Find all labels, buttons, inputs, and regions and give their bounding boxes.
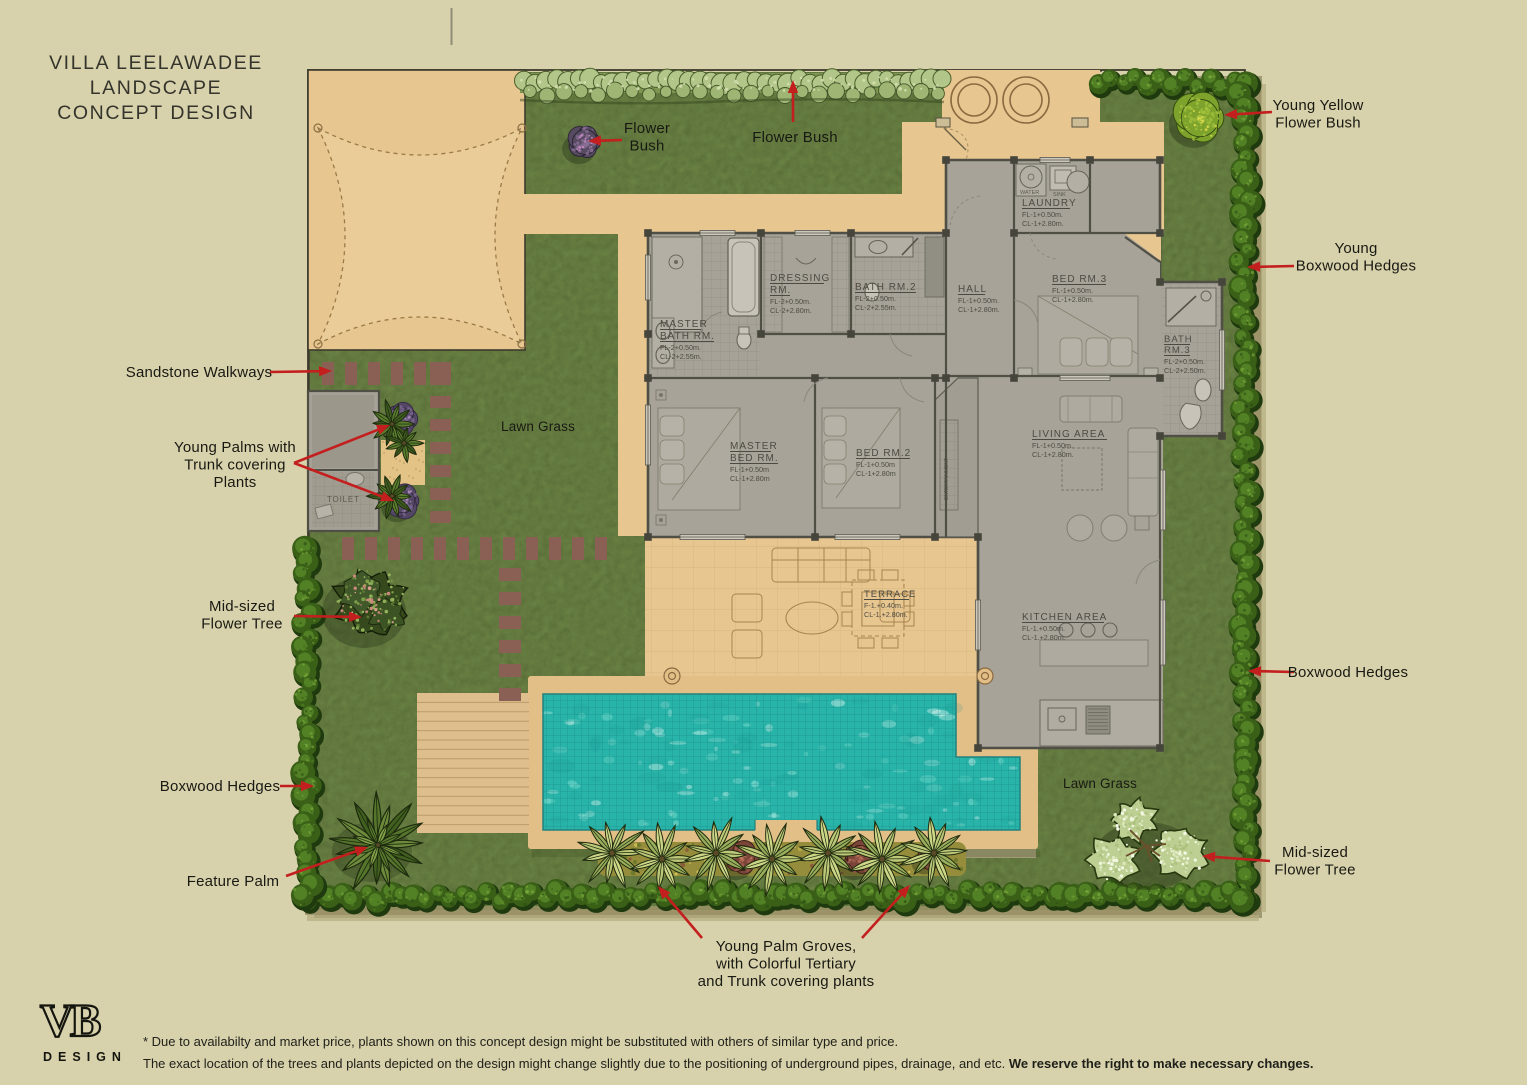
svg-text:Boxwood Hedges: Boxwood Hedges (1288, 664, 1408, 681)
svg-text:Boxwood Hedges: Boxwood Hedges (160, 778, 280, 795)
svg-text:FL-2+0.50m.: FL-2+0.50m. (770, 297, 811, 306)
svg-text:CL-1+2.80m.: CL-1+2.80m. (1032, 450, 1074, 459)
svg-text:CL-2+2.55m.: CL-2+2.55m. (855, 303, 897, 312)
svg-text:CL-1+2.80m: CL-1+2.80m (856, 469, 896, 478)
svg-text:FL-1.+0.50m.: FL-1.+0.50m. (1022, 624, 1065, 633)
svg-text:FL-2+0.50m.: FL-2+0.50m. (660, 343, 701, 352)
svg-text:CL-1+2.80m.: CL-1+2.80m. (1052, 295, 1094, 304)
svg-text:Lawn Grass: Lawn Grass (1063, 776, 1137, 791)
svg-text:LIVING AREA: LIVING AREA (1032, 429, 1105, 440)
svg-text:CL-1+2.80m.: CL-1+2.80m. (958, 305, 1000, 314)
svg-text:LAUNDRY: LAUNDRY (1022, 198, 1077, 209)
svg-text:DRESSING: DRESSING (770, 273, 830, 284)
svg-text:CL-2+2.55m.: CL-2+2.55m. (660, 352, 702, 361)
svg-text:CL-1+2.80m: CL-1+2.80m (730, 474, 770, 483)
svg-text:FL-2+0.50m.: FL-2+0.50m. (1164, 357, 1205, 366)
svg-text:CL-1.+2.80m.: CL-1.+2.80m. (864, 610, 908, 619)
svg-text:DESIGN: DESIGN (43, 1050, 127, 1064)
svg-text:The exact location of the tree: The exact location of the trees and plan… (143, 1056, 1314, 1071)
svg-text:BATH RM.: BATH RM. (660, 331, 715, 342)
svg-text:CL-1+2.80m.: CL-1+2.80m. (1022, 219, 1064, 228)
svg-text:MASTER: MASTER (730, 441, 778, 452)
svg-text:RM.: RM. (770, 285, 791, 296)
svg-text:Mid-sizedFlower Tree: Mid-sizedFlower Tree (201, 598, 282, 633)
svg-text:Mid-sizedFlower Tree: Mid-sizedFlower Tree (1274, 844, 1355, 879)
svg-text:Sandstone Walkways: Sandstone Walkways (126, 364, 272, 381)
svg-text:Young Palm Groves,with Colorfu: Young Palm Groves,with Colorful Tertiary… (698, 938, 875, 990)
svg-text:Feature Palm: Feature Palm (187, 873, 279, 890)
svg-text:BED RM.2: BED RM.2 (856, 448, 911, 459)
svg-text:Lawn Grass: Lawn Grass (501, 419, 575, 434)
svg-text:CL-2+2.80m.: CL-2+2.80m. (770, 306, 812, 315)
svg-text:BATH RM.2: BATH RM.2 (855, 282, 917, 293)
svg-text:FL-1+0.50m.: FL-1+0.50m. (958, 296, 999, 305)
svg-text:FlowerBush: FlowerBush (624, 120, 670, 155)
svg-text:FL-1+0.50m: FL-1+0.50m (856, 460, 895, 469)
svg-text:FL-1+0.50m.: FL-1+0.50m. (1022, 210, 1063, 219)
svg-text:MASTER: MASTER (660, 319, 708, 330)
svg-text:BATH: BATH (1164, 334, 1193, 345)
svg-text:FL-2+0.50m.: FL-2+0.50m. (855, 294, 896, 303)
svg-text:TERRACE: TERRACE (864, 589, 916, 600)
svg-text:FL-1+0.50m.: FL-1+0.50m. (1052, 286, 1093, 295)
svg-text:RM.3: RM.3 (1164, 345, 1191, 356)
svg-text:BED RM.3: BED RM.3 (1052, 274, 1107, 285)
svg-text:FL-1+0.50m: FL-1+0.50m (730, 465, 769, 474)
svg-text:CL-2+2.50m.: CL-2+2.50m. (1164, 366, 1206, 375)
svg-text:CL-1.+2.80m.: CL-1.+2.80m. (1022, 633, 1066, 642)
svg-text:Young YellowFlower Bush: Young YellowFlower Bush (1272, 97, 1363, 132)
svg-text:HALL: HALL (958, 284, 987, 295)
svg-text:KITCHEN AREA: KITCHEN AREA (1022, 612, 1107, 623)
svg-text:TOILET: TOILET (327, 495, 360, 504)
svg-text:VB: VB (40, 995, 101, 1047)
svg-text:Flower Bush: Flower Bush (752, 129, 838, 146)
svg-text:WATER: WATER (1020, 190, 1039, 196)
svg-text:FL-1+0.50m.: FL-1+0.50m. (1032, 441, 1073, 450)
svg-text:BED RM.: BED RM. (730, 453, 779, 464)
svg-text:* Due to availabilty and marke: * Due to availabilty and market price, p… (143, 1034, 898, 1049)
svg-text:F-1.+0.40m.: F-1.+0.40m. (864, 601, 903, 610)
